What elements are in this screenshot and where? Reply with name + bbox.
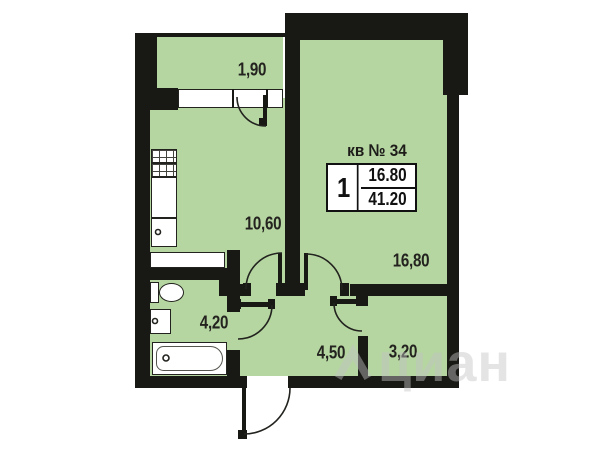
area-label-bathroom: 4,20 xyxy=(200,313,228,334)
wall xyxy=(285,13,300,296)
entry-door-leaf xyxy=(242,388,246,434)
kitchen-sink-icon xyxy=(151,218,177,247)
wall xyxy=(227,250,240,312)
total-area-value: 41.20 xyxy=(361,187,415,211)
wall xyxy=(135,376,243,388)
entry-door-arc xyxy=(244,388,290,434)
washbasin-icon xyxy=(150,309,171,334)
entry-door-handle xyxy=(238,430,247,439)
bathtub-icon xyxy=(152,342,227,375)
watermark-text: циан xyxy=(378,342,511,385)
wall xyxy=(135,88,178,110)
watermark: циан xyxy=(334,342,511,385)
apartment-number-label: кв № 34 xyxy=(347,141,407,161)
wall xyxy=(285,13,468,40)
wall xyxy=(135,33,290,37)
wall xyxy=(227,350,240,376)
area-label-kitchen: 10,60 xyxy=(245,214,282,235)
living-area-value: 16.80 xyxy=(361,165,415,187)
wall xyxy=(350,284,447,296)
toilet-icon xyxy=(159,283,184,302)
wall xyxy=(135,95,150,388)
counter-icon xyxy=(150,252,225,268)
wall xyxy=(150,268,227,280)
area-label-balcony: 1,90 xyxy=(238,60,266,81)
toilet-icon xyxy=(150,282,159,303)
apartment-info-table: 1 16.80 41.20 xyxy=(326,163,417,212)
area-label-living-room: 16,80 xyxy=(393,251,430,272)
counter-icon xyxy=(151,177,177,218)
window-balcony-block xyxy=(178,89,283,108)
wall xyxy=(443,13,468,95)
wall xyxy=(356,296,368,306)
rooms-count: 1 xyxy=(330,165,358,210)
floor-plan: 1,90 10,60 16,80 4,20 4,50 3,20 кв № 34 … xyxy=(0,0,600,450)
stove-icon xyxy=(151,149,177,177)
cian-logo-icon xyxy=(334,342,372,382)
